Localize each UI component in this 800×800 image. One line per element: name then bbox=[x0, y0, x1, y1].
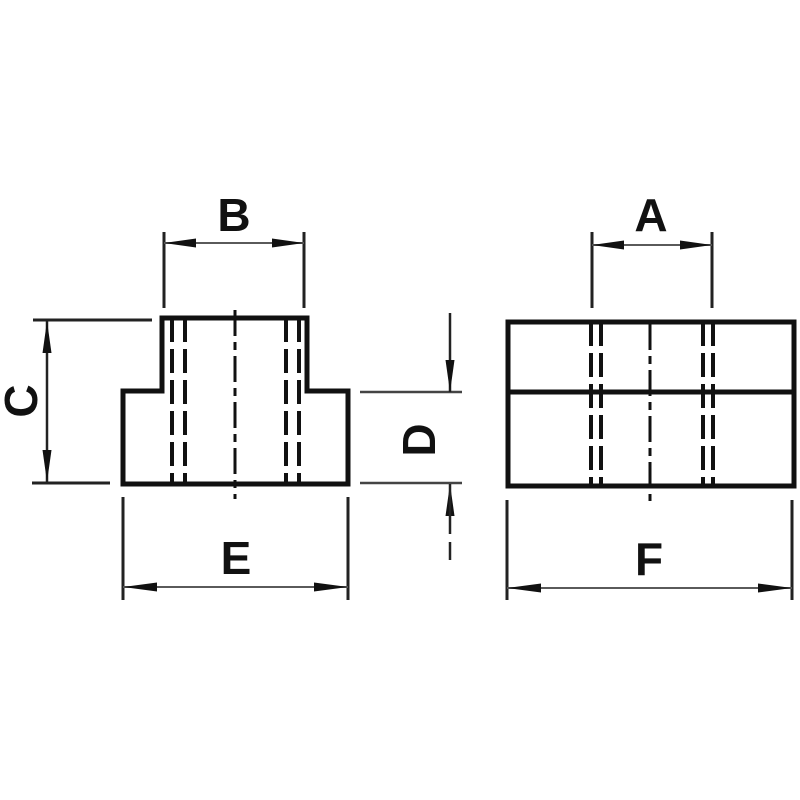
arrowhead-left bbox=[507, 584, 541, 593]
dimension-e-label: E bbox=[221, 532, 252, 584]
dimension-f-group: F bbox=[507, 500, 792, 600]
arrowhead-right bbox=[314, 583, 348, 592]
dimension-d-label: D bbox=[393, 423, 445, 456]
arrowhead-left bbox=[592, 241, 624, 250]
arrowhead-right bbox=[272, 239, 304, 248]
drawing-canvas: B C E A bbox=[0, 0, 800, 800]
dimension-c-group: C bbox=[0, 320, 152, 483]
dimension-b-label: B bbox=[217, 189, 250, 241]
arrowhead-left bbox=[123, 583, 157, 592]
arrowhead-down bbox=[446, 360, 455, 392]
dimension-a-group: A bbox=[592, 189, 712, 308]
front-view bbox=[123, 310, 348, 499]
dimension-f-label: F bbox=[635, 533, 663, 585]
side-view bbox=[508, 322, 794, 501]
arrowhead-left bbox=[164, 239, 196, 248]
dimension-a-label: A bbox=[634, 189, 667, 241]
dimension-c-label: C bbox=[0, 384, 47, 417]
dimension-e-group: E bbox=[123, 497, 348, 600]
t-nut-engineering-drawing: B C E A bbox=[0, 0, 800, 800]
arrowhead-right bbox=[758, 584, 792, 593]
dimension-d-group: D bbox=[360, 313, 462, 560]
arrowhead-right bbox=[680, 241, 712, 250]
dimension-b-group: B bbox=[164, 189, 304, 308]
arrowhead-down bbox=[43, 450, 52, 482]
arrowhead-up bbox=[43, 321, 52, 353]
